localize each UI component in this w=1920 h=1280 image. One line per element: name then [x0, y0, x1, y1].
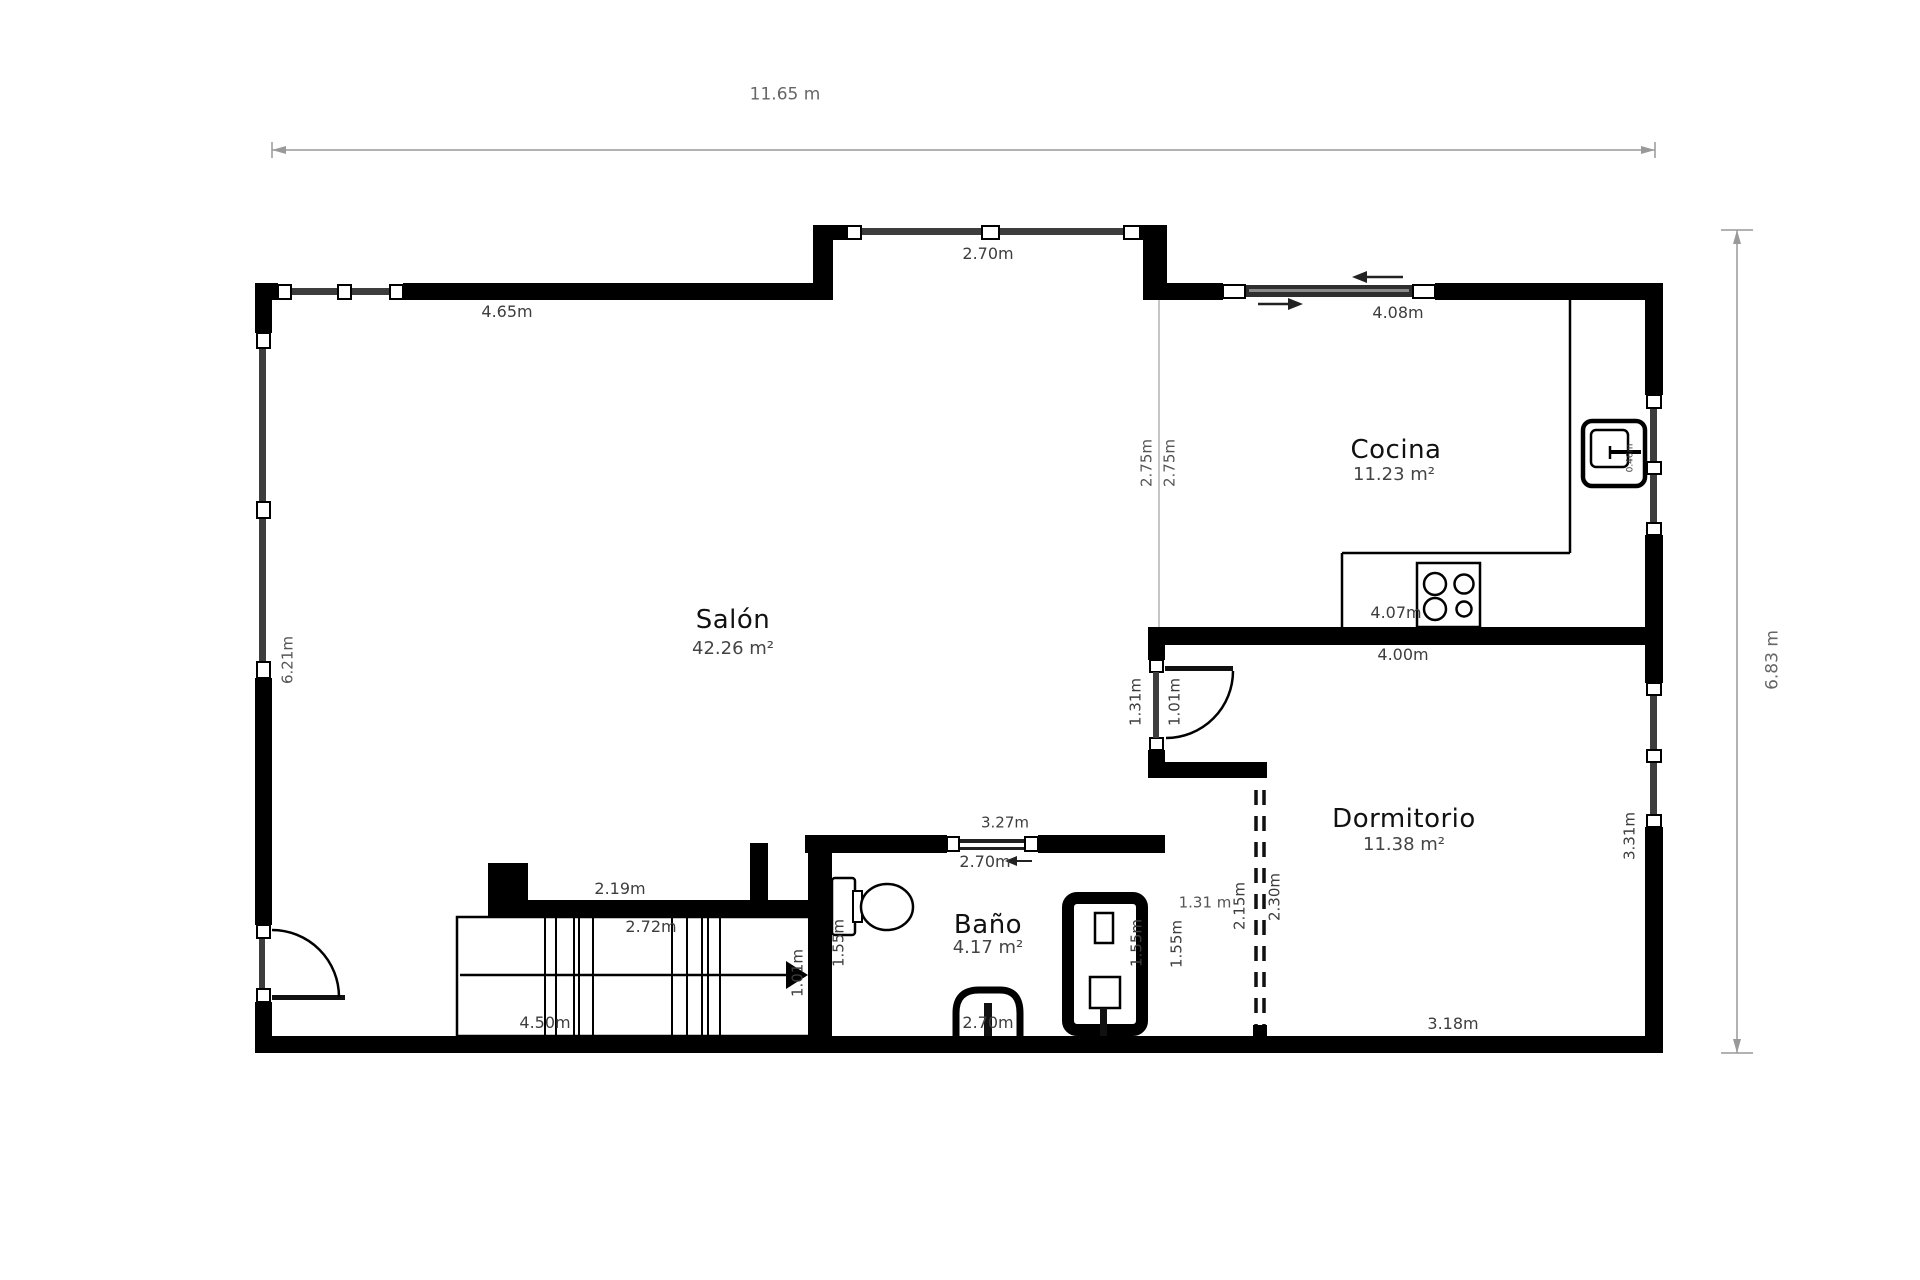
room-salon: Salón	[696, 607, 771, 633]
room-bano: Baño	[954, 912, 1022, 938]
dim-total-height: 6.83 m	[1765, 630, 1782, 690]
dim-stairs-upper: 2.72m	[625, 919, 676, 935]
dim-bedroom-bottom: 3.18m	[1427, 1016, 1478, 1032]
room-dormitorio: Dormitorio	[1332, 806, 1476, 832]
dim-bath-top-wall: 3.27m	[981, 816, 1029, 831]
dim-stairs-lower: 4.50m	[519, 1015, 570, 1031]
dim-kitchen-counter: 4.07m	[1370, 605, 1421, 621]
dim-hall-width: 1.31 m	[1179, 896, 1232, 911]
dim-kitchen-sink: 0.46m	[1627, 444, 1636, 473]
dim-bedroom-top-wall: 4.00m	[1377, 647, 1428, 663]
dim-bedroom-door: 1.01m	[1168, 678, 1183, 726]
dim-partition-right: 2.30m	[1268, 873, 1283, 921]
area-cocina: 11.23 m²	[1353, 466, 1435, 484]
dim-closet-opening: 2.19m	[594, 881, 645, 897]
dim-hall-wall: 1.31m	[1129, 678, 1144, 726]
dim-shower-outer: 1.55m	[1170, 920, 1185, 968]
dim-kitchen-open-left: 2.75m	[1140, 439, 1155, 487]
labels-layer: 11.65 m4.65m2.70m4.08m2.75m2.75mCocina11…	[0, 0, 1920, 1280]
dim-kitchen-open-right: 2.75m	[1163, 439, 1178, 487]
dim-top-right-wall: 4.08m	[1372, 305, 1423, 321]
dim-bath-depth: 1.55m	[832, 919, 847, 967]
area-dormitorio: 11.38 m²	[1363, 836, 1445, 854]
dim-top-left-wall: 4.65m	[481, 304, 532, 320]
dim-partition-left: 2.15m	[1233, 882, 1248, 930]
dim-shower-inner: 1.55m	[1130, 919, 1145, 967]
dim-stairs-arrow: 1.01m	[791, 949, 806, 997]
dim-bedroom-right: 3.31m	[1623, 812, 1638, 860]
dim-bath-window: 2.70m	[959, 854, 1010, 870]
dim-bath-bottom: 2.70m	[962, 1015, 1013, 1031]
dim-bay-window: 2.70m	[962, 246, 1013, 262]
area-bano: 4.17 m²	[953, 939, 1024, 957]
room-cocina: Cocina	[1351, 437, 1442, 463]
dim-left-wall: 6.21m	[281, 636, 296, 684]
dim-total-width: 11.65 m	[750, 87, 821, 104]
area-salon: 42.26 m²	[692, 640, 774, 658]
floor-plan-canvas: 11.65 m4.65m2.70m4.08m2.75m2.75mCocina11…	[0, 0, 1920, 1280]
